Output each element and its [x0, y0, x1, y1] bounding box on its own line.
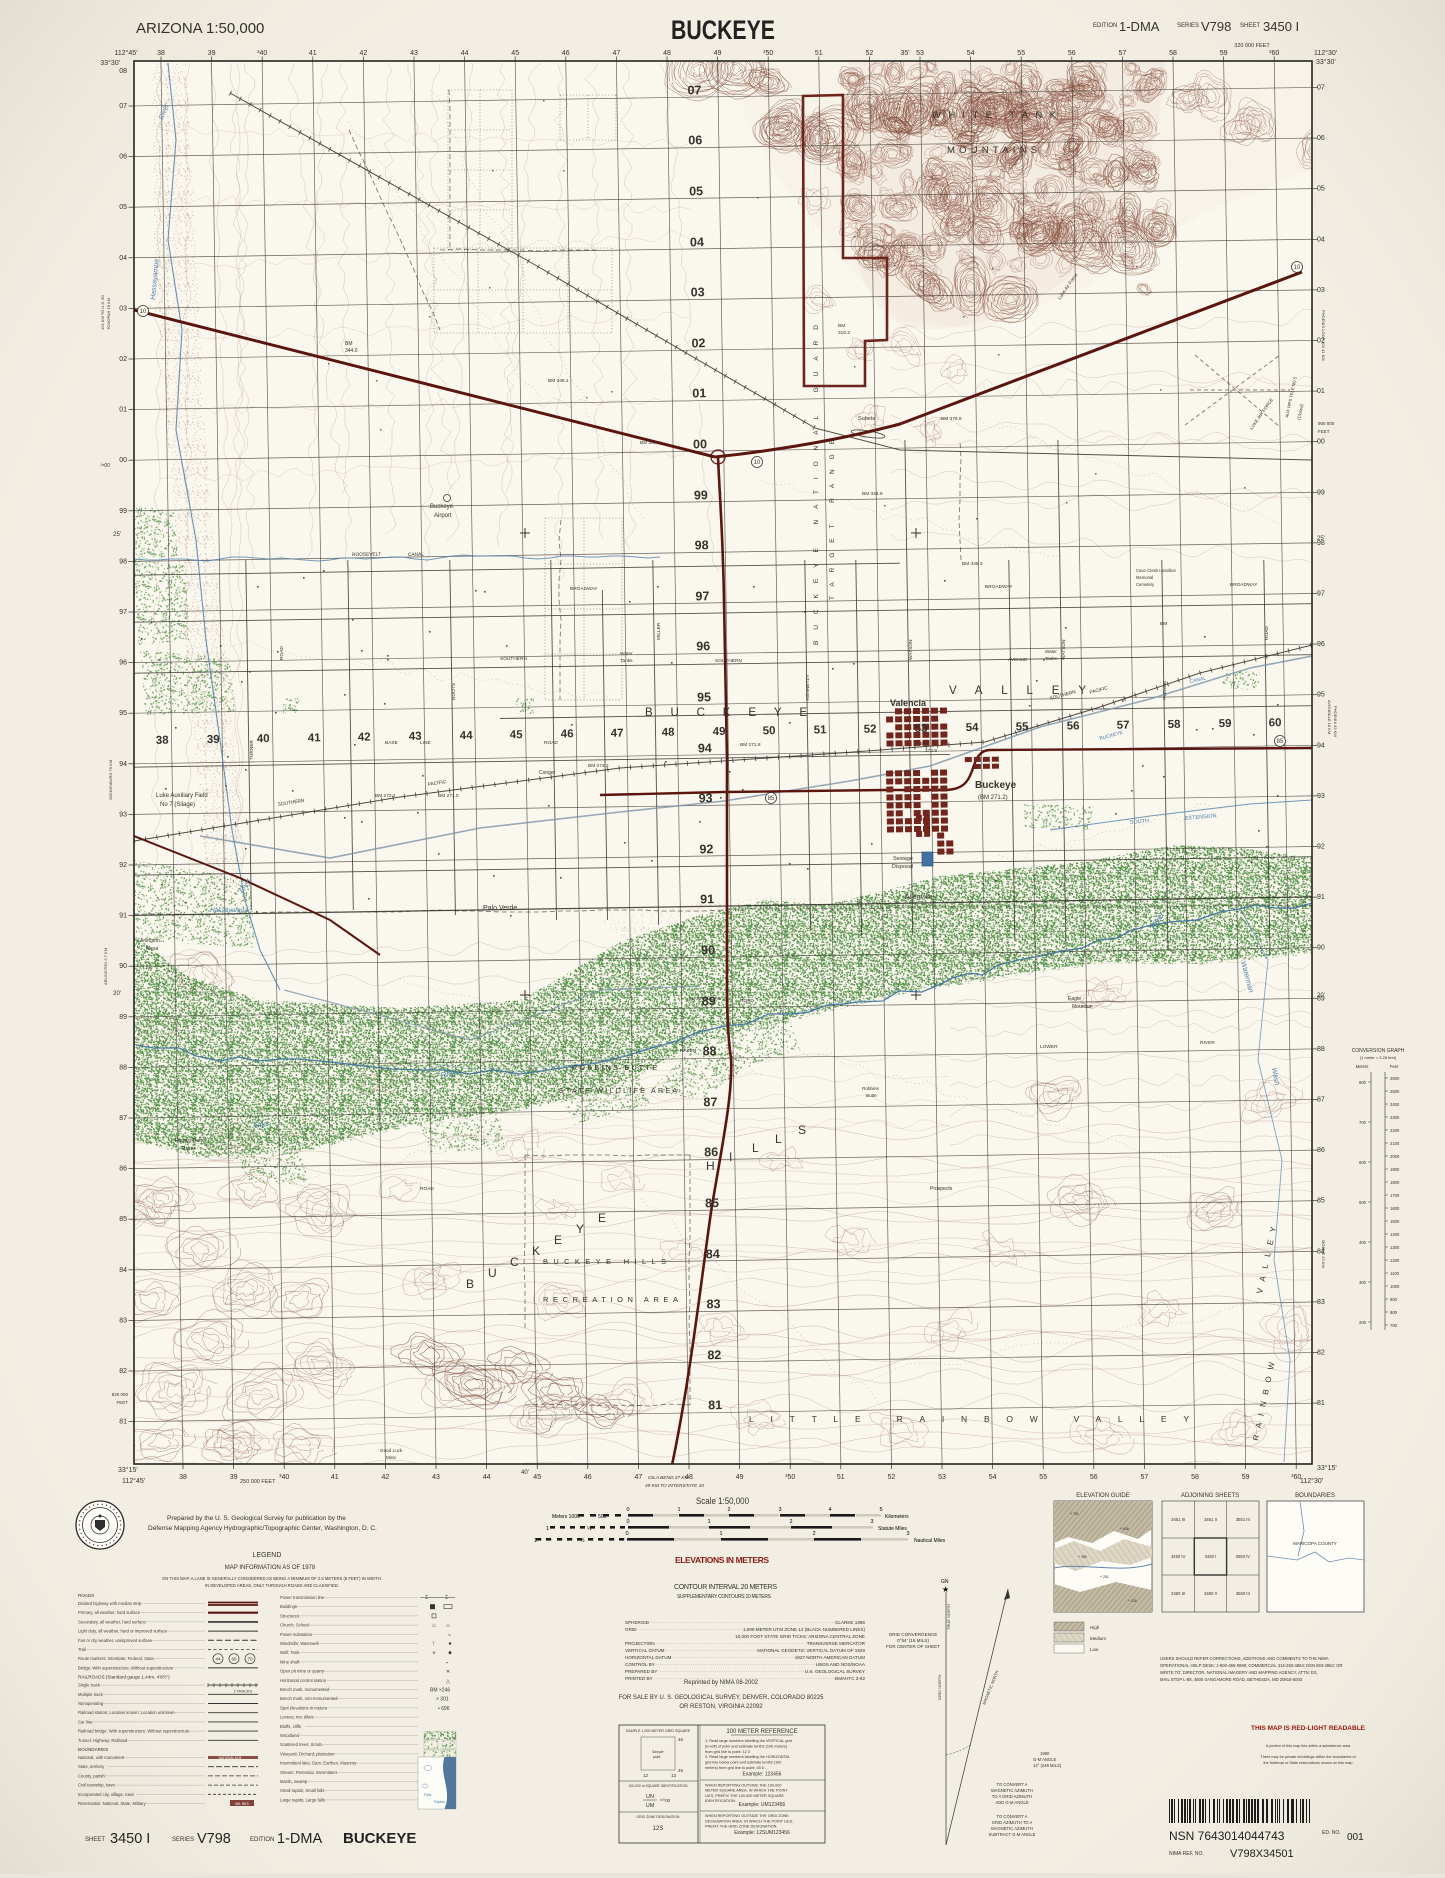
- svg-text:87: 87: [119, 1115, 127, 1122]
- svg-text:EDITION: EDITION: [1093, 23, 1117, 29]
- svg-text:BM: BM: [1160, 621, 1167, 627]
- svg-text:500: 500: [1359, 1200, 1367, 1205]
- svg-text:AVONDALE 16 KM: AVONDALE 16 KM: [1327, 700, 1332, 734]
- svg-text:Levees; rice dikes: Levees; rice dikes: [280, 1715, 314, 1720]
- svg-text:FOR SALE BY U. S. GEOLOGICAL S: FOR SALE BY U. S. GEOLOGICAL SURVEY, DEN…: [619, 1695, 825, 1701]
- svg-text:1600: 1600: [1390, 1206, 1400, 1211]
- svg-text:55: 55: [1016, 721, 1030, 733]
- svg-text:Prepared by the U. S. Geologic: Prepared by the U. S. Geological Survey …: [167, 1515, 346, 1522]
- svg-text:38: 38: [179, 1474, 187, 1481]
- svg-text:1300: 1300: [1390, 1245, 1400, 1250]
- svg-text:BM 273.2: BM 273.2: [588, 763, 609, 769]
- svg-text:98: 98: [119, 558, 127, 565]
- svg-text:Memorial: Memorial: [1136, 575, 1153, 580]
- svg-text:03: 03: [691, 285, 705, 299]
- svg-text:Tanks: Tanks: [620, 658, 633, 664]
- svg-text:BUCKEYE: BUCKEYE: [343, 1830, 416, 1847]
- svg-text:WICKENBURG 79 KM: WICKENBURG 79 KM: [108, 760, 113, 800]
- svg-text:49: 49: [713, 726, 726, 738]
- svg-text:GRID AZIMUTH TO A: GRID AZIMUTH TO A: [992, 1820, 1033, 1825]
- svg-text:54: 54: [967, 50, 975, 57]
- svg-text:14° (249 MILS): 14° (249 MILS): [1033, 1763, 1062, 1768]
- svg-text:1: 1: [707, 1519, 710, 1525]
- svg-text:Statute Miles: Statute Miles: [878, 1526, 907, 1532]
- svg-text:41: 41: [309, 50, 317, 57]
- svg-text:Bluffs, cliffs: Bluffs, cliffs: [280, 1724, 301, 1729]
- svg-text:GRID: GRID: [625, 1627, 637, 1632]
- svg-text:BM 271.0: BM 271.0: [438, 793, 459, 799]
- svg-text:RIVER: RIVER: [1200, 1040, 1215, 1046]
- svg-text:MIL RES: MIL RES: [235, 1802, 249, 1806]
- svg-text:820 000: 820 000: [112, 1392, 129, 1397]
- svg-text:400: 400: [1359, 1240, 1367, 1245]
- svg-text:Example: UM123456: Example: UM123456: [739, 1802, 786, 1808]
- svg-text:2 TRACKS: 2 TRACKS: [234, 1689, 253, 1693]
- svg-text:Nonoperating: Nonoperating: [78, 1701, 104, 1706]
- svg-text:112°30': 112°30': [1300, 1477, 1323, 1485]
- svg-text:Horizontal control station: Horizontal control station: [280, 1678, 327, 1683]
- svg-text:Cave Creek Hamilton: Cave Creek Hamilton: [1136, 568, 1176, 573]
- svg-text:91: 91: [700, 892, 714, 906]
- svg-text:SHEET: SHEET: [85, 1837, 105, 1843]
- svg-text:Tanks: Tanks: [1045, 656, 1058, 661]
- svg-text:89: 89: [119, 1014, 127, 1021]
- svg-text:BM 349.3: BM 349.3: [962, 561, 983, 567]
- svg-text:Subeta: Subeta: [858, 416, 876, 422]
- svg-text:Incorporated city, village, to: Incorporated city, village, town: [78, 1792, 135, 1797]
- svg-text:70: 70: [247, 1657, 253, 1662]
- svg-text:85: 85: [119, 1216, 127, 1223]
- svg-text:Fair or dry weather, unimprove: Fair or dry weather, unimproved surface: [78, 1638, 153, 1643]
- svg-text:1000: 1000: [1390, 1284, 1400, 1289]
- svg-text:200: 200: [1359, 1320, 1367, 1325]
- svg-text:Rapids: Rapids: [434, 1800, 445, 1804]
- svg-text:ROADS: ROADS: [78, 1593, 94, 1598]
- svg-text:ROAD: ROAD: [740, 998, 754, 1004]
- svg-text:SAMPLE 1,000 METER GRID SQUARE: SAMPLE 1,000 METER GRID SQUARE: [626, 1729, 691, 1733]
- svg-text:BROADWAY: BROADWAY: [1230, 582, 1258, 588]
- svg-text:3450 I: 3450 I: [1263, 19, 1299, 34]
- svg-text:0°54' (16 MILS): 0°54' (16 MILS): [897, 1638, 929, 1643]
- svg-text:40': 40': [521, 1470, 529, 1476]
- svg-text:90: 90: [701, 943, 715, 957]
- svg-text:BROADWAY: BROADWAY: [570, 586, 598, 592]
- svg-text:Defense Mapping Agency Hydrogr: Defense Mapping Agency Hydrographic/Topo…: [148, 1525, 377, 1532]
- svg-text:1500: 1500: [1390, 1219, 1400, 1224]
- svg-text:Small rapids; Small falls: Small rapids; Small falls: [280, 1788, 324, 1793]
- svg-text:07: 07: [119, 103, 127, 110]
- svg-text:81: 81: [708, 1398, 722, 1412]
- svg-text:0: 0: [625, 1531, 628, 1537]
- svg-text:35': 35': [900, 50, 909, 57]
- svg-text:06: 06: [1317, 135, 1325, 142]
- svg-text:WHEN REPORTING OUTSIDE THE: WHEN REPORTING OUTSIDE THE GRID ZONE: [705, 1814, 789, 1818]
- svg-text:48: 48: [662, 727, 676, 739]
- svg-text:Kilometers: Kilometers: [885, 1514, 909, 1520]
- svg-text:47: 47: [611, 728, 624, 740]
- svg-text:82: 82: [1317, 1350, 1325, 1357]
- svg-text:METER SQUARE AREA, IN WHIC: METER SQUARE AREA, IN WHICH THE POINT: [705, 1789, 788, 1793]
- svg-text:USERS SHOULD REFER CORRECTIONS: USERS SHOULD REFER CORRECTIONS, ADDITION…: [1160, 1656, 1329, 1661]
- svg-text:57: 57: [1119, 50, 1127, 57]
- svg-text:Buckeye: Buckeye: [975, 780, 1017, 791]
- svg-text:33°30': 33°30': [100, 59, 120, 67]
- svg-text:81: 81: [1317, 1400, 1325, 1407]
- svg-text:44: 44: [461, 50, 469, 57]
- svg-text:95: 95: [697, 690, 711, 704]
- svg-text:NSN 7643014044743: NSN 7643014044743: [1169, 1829, 1285, 1843]
- svg-text:Light duty, all weather, hard: Light duty, all weather, hard or improve…: [78, 1629, 168, 1634]
- svg-text:Robbins: Robbins: [862, 1086, 880, 1091]
- svg-text:OR RESTON, VIRGINIA 22092: OR RESTON, VIRGINIA 22092: [679, 1704, 763, 1710]
- svg-text:³60: ³60: [1269, 50, 1279, 57]
- svg-text:³⁸00: ³⁸00: [101, 463, 111, 469]
- svg-text:93: 93: [119, 811, 127, 818]
- svg-text:TONOPAH 19 KM: TONOPAH 19 KM: [106, 298, 111, 330]
- svg-text:3450 II: 3450 II: [1204, 1591, 1217, 1596]
- svg-text:S: S: [798, 1123, 806, 1137]
- svg-text:³50: ³50: [763, 50, 773, 57]
- svg-text:LEGEND: LEGEND: [253, 1552, 282, 1559]
- svg-text:49 KM TO INTERSTATE 10: 49 KM TO INTERSTATE 10: [645, 1483, 704, 1489]
- svg-text:1400: 1400: [1390, 1232, 1400, 1237]
- svg-text:04: 04: [1317, 236, 1325, 243]
- svg-text:2000: 2000: [1390, 1154, 1400, 1159]
- svg-text:Meters: Meters: [1356, 1064, 1369, 1069]
- svg-text:Powers Butte: Powers Butte: [175, 1138, 205, 1144]
- svg-text:Palo Verde: Palo Verde: [483, 905, 517, 912]
- svg-text:Mesa: Mesa: [146, 946, 158, 952]
- svg-text:93: 93: [1317, 793, 1325, 800]
- svg-text:CONTOUR INTERVAL 20 METERS: CONTOUR INTERVAL 20 METERS: [674, 1584, 777, 1591]
- svg-text:44: 44: [460, 730, 474, 742]
- svg-text:60: 60: [1269, 717, 1282, 729]
- svg-text:53: 53: [938, 1474, 946, 1481]
- svg-text:Conger: Conger: [539, 770, 556, 776]
- svg-text:92: 92: [699, 842, 713, 856]
- svg-text:900: 900: [1390, 1297, 1398, 1302]
- svg-text:Y: Y: [576, 1222, 584, 1236]
- svg-text:2400: 2400: [1390, 1102, 1400, 1107]
- svg-text:CONTROL BY: CONTROL BY: [625, 1662, 655, 1667]
- svg-text:88: 88: [1317, 1046, 1325, 1053]
- svg-text:00: 00: [693, 437, 707, 451]
- svg-text:88: 88: [703, 1044, 717, 1058]
- svg-text:53: 53: [916, 50, 924, 57]
- svg-text:81: 81: [119, 1419, 127, 1426]
- svg-text:49: 49: [736, 1474, 744, 1481]
- svg-text:SUPPLEMENTARY CONTOURS 10 METE: SUPPLEMENTARY CONTOURS 10 METERS: [677, 1594, 772, 1600]
- svg-text:PREPARED BY: PREPARED BY: [625, 1669, 657, 1674]
- svg-text:91: 91: [1317, 894, 1325, 901]
- svg-text:700: 700: [1359, 1120, 1367, 1125]
- svg-text:Prospects: Prospects: [930, 1186, 953, 1192]
- svg-text:Arlington: Arlington: [140, 938, 160, 944]
- svg-text:83: 83: [706, 1297, 720, 1311]
- svg-text:51: 51: [814, 724, 828, 736]
- svg-text:08: 08: [119, 68, 127, 75]
- svg-text:Cemetery: Cemetery: [1136, 582, 1155, 587]
- svg-text:03: 03: [119, 305, 127, 312]
- svg-text:Disposal: Disposal: [892, 864, 913, 870]
- svg-text:County, parish: County, parish: [78, 1773, 105, 1778]
- svg-text:Example: 12SUM123456: Example: 12SUM123456: [734, 1830, 790, 1836]
- svg-text:600: 600: [1359, 1160, 1367, 1165]
- svg-text:(to left) of point and estimat: (to left) of point and estimate tenths (…: [705, 1744, 788, 1748]
- svg-text:33°15': 33°15': [1317, 1464, 1337, 1472]
- svg-text:Open pit mine or quarry: Open pit mine or quarry: [280, 1669, 325, 1674]
- svg-text:Secondary, all weather, hard s: Secondary, all weather, hard surface: [78, 1619, 146, 1624]
- svg-text:33°30': 33°30': [1316, 58, 1336, 66]
- svg-text:ARIZONA 1:50,000: ARIZONA 1:50,000: [136, 20, 264, 37]
- svg-text:+ 251: + 251: [1100, 1575, 1109, 1579]
- svg-text:GRID NORTH: GRID NORTH: [937, 1675, 942, 1700]
- svg-text:52: 52: [866, 50, 874, 57]
- svg-text:ᛉ: ᛉ: [432, 1642, 435, 1648]
- svg-text:20': 20': [113, 991, 121, 997]
- svg-text:2. Read large numbers labelli: 2. Read large numbers labelling the HORI…: [705, 1755, 790, 1759]
- svg-text:AVENUE: AVENUE: [1008, 657, 1027, 663]
- svg-text:97: 97: [119, 609, 127, 616]
- svg-text:55: 55: [1039, 1474, 1047, 1481]
- svg-text:59: 59: [1219, 718, 1232, 730]
- svg-text:85: 85: [768, 796, 775, 802]
- svg-text:20': 20': [1317, 993, 1325, 999]
- svg-text:85: 85: [1317, 1198, 1325, 1205]
- svg-text:112°30': 112°30': [1314, 49, 1337, 57]
- svg-text:BM: BM: [920, 741, 927, 747]
- svg-text:42: 42: [382, 1474, 390, 1481]
- svg-text:45: 45: [533, 1474, 541, 1481]
- svg-text:3450 IV: 3450 IV: [1171, 1554, 1186, 1559]
- svg-text:SERIES: SERIES: [172, 1837, 194, 1843]
- svg-text:Mine: Mine: [386, 1455, 396, 1460]
- svg-text:45: 45: [510, 729, 524, 741]
- svg-text:MARICOPA COUNTY: MARICOPA COUNTY: [1293, 1541, 1337, 1546]
- svg-text:Vineyard; Orchard; plantation: Vineyard; Orchard; plantation: [280, 1751, 335, 1756]
- svg-text:2600: 2600: [1390, 1076, 1400, 1081]
- svg-text:Reservation: National, State,: Reservation: National, State, Military: [78, 1801, 147, 1806]
- svg-text:No 7 (Silage): No 7 (Silage): [160, 802, 195, 808]
- svg-text:12: 12: [643, 1773, 649, 1778]
- svg-text:+ 636: + 636: [1120, 1527, 1129, 1531]
- svg-text:Railroad station; Location kno: Railroad station; Location known; Locati…: [78, 1710, 175, 1715]
- svg-text:NIMA REF. NO.: NIMA REF. NO.: [1169, 1851, 1204, 1857]
- svg-text:△: △: [446, 1678, 450, 1684]
- svg-text:ROOSEVELT: ROOSEVELT: [352, 551, 381, 558]
- svg-text:Butte: Butte: [866, 1093, 877, 1098]
- svg-text:100 METER REFERENCE: 100 METER REFERENCE: [726, 1729, 797, 1735]
- svg-text:L: L: [752, 1141, 759, 1155]
- svg-text:Civil township, town: Civil township, town: [78, 1783, 115, 1788]
- svg-text:44: 44: [215, 1657, 221, 1662]
- svg-text:320 000 FEET: 320 000 FEET: [1234, 43, 1270, 49]
- svg-text:There may be private inholding: There may be private inholdings within t…: [1260, 1755, 1356, 1759]
- svg-text:National, with monument: National, with monument: [78, 1755, 125, 1760]
- svg-text:1: 1: [677, 1507, 680, 1513]
- svg-text:the National or State reservat: the National or State reservations shown…: [1263, 1761, 1352, 1765]
- svg-text:45: 45: [511, 50, 519, 57]
- svg-text:Single track: Single track: [78, 1683, 101, 1688]
- svg-text:112°45': 112°45': [114, 49, 137, 57]
- svg-text:97: 97: [1317, 591, 1325, 598]
- svg-text:from grid line to point: 12: from grid line to point: 12 3: [705, 1750, 750, 1754]
- svg-text:TRANSVERSE MERCATOR: TRANSVERSE MERCATOR: [807, 1641, 866, 1646]
- svg-text:RAILROADS (Standard gauge 1.44: RAILROADS (Standard gauge 1.44m, 4'8½"): [78, 1674, 170, 1680]
- svg-text:I: I: [729, 1150, 732, 1164]
- svg-text:FOR CENTER OF SHEET: FOR CENTER OF SHEET: [886, 1644, 940, 1649]
- svg-text:B: B: [466, 1277, 474, 1291]
- svg-text:V798: V798: [1201, 19, 1231, 34]
- svg-text:4: 4: [828, 1507, 831, 1513]
- svg-text:06: 06: [688, 133, 702, 147]
- svg-text:55: 55: [1017, 50, 1025, 57]
- svg-text:3450 I: 3450 I: [110, 1831, 150, 1847]
- svg-text:FEET: FEET: [116, 1400, 128, 1405]
- svg-text:★: ★: [942, 1585, 949, 1594]
- svg-text:59: 59: [1220, 50, 1228, 57]
- svg-text:Falls: Falls: [424, 1793, 432, 1797]
- svg-text:02: 02: [119, 356, 127, 363]
- svg-text:46: 46: [562, 50, 570, 57]
- svg-text:3450 III: 3450 III: [1171, 1591, 1185, 1596]
- svg-text:54: 54: [989, 1474, 997, 1481]
- svg-text:Reprinted by NIMA 08-2002: Reprinted by NIMA 08-2002: [684, 1680, 759, 1686]
- svg-text:100,000 m SQUARE IDENTIFICATIO: 100,000 m SQUARE IDENTIFICATION: [629, 1784, 688, 1788]
- svg-text:NATIONAL GEODETIC VERTICAL DAT: NATIONAL GEODETIC VERTICAL DATUM OF 1929: [757, 1648, 865, 1653]
- svg-text:3551 III: 3551 III: [1236, 1517, 1250, 1522]
- svg-text:V798: V798: [197, 1831, 231, 1847]
- svg-text:2300: 2300: [1390, 1115, 1400, 1120]
- svg-text:ELEVATIONS IN METERS: ELEVATIONS IN METERS: [675, 1555, 769, 1565]
- svg-text:BM: BM: [838, 323, 845, 329]
- svg-text:700: 700: [1390, 1323, 1398, 1328]
- svg-text:900 000: 900 000: [1318, 421, 1335, 426]
- svg-text:97: 97: [695, 589, 709, 603]
- svg-text:07: 07: [687, 83, 701, 97]
- svg-text:BM 348.1: BM 348.1: [548, 378, 569, 384]
- svg-text:58: 58: [1168, 719, 1182, 731]
- svg-text:BM ×246: BM ×246: [430, 1688, 450, 1694]
- svg-text:Church; School: Church; School: [280, 1623, 309, 1628]
- svg-text:Spot elevations in meters: Spot elevations in meters: [280, 1705, 327, 1710]
- svg-text:57: 57: [1141, 1474, 1149, 1481]
- svg-text:99: 99: [694, 488, 708, 502]
- svg-text:Windmills; Waterwell: Windmills; Waterwell: [280, 1641, 319, 1646]
- svg-text:Valencia: Valencia: [890, 698, 927, 708]
- svg-text:1-DMA: 1-DMA: [277, 1831, 322, 1847]
- svg-text:10: 10: [1294, 265, 1301, 271]
- svg-text:41: 41: [331, 1474, 339, 1481]
- svg-text:83: 83: [119, 1317, 127, 1324]
- svg-text:BOUNDARIES: BOUNDARIES: [78, 1747, 108, 1752]
- svg-text:1800: 1800: [1390, 1180, 1400, 1185]
- svg-text:46: 46: [561, 728, 574, 740]
- svg-text:PREFIX THE GRID ZONE DESIGNATI: PREFIX THE GRID ZONE DESIGNATION.: [705, 1825, 777, 1829]
- svg-text:State, territory: State, territory: [78, 1764, 105, 1769]
- svg-text:94: 94: [1317, 742, 1325, 749]
- svg-text:ROAD: ROAD: [544, 740, 558, 746]
- svg-text:54: 54: [966, 722, 980, 734]
- svg-text:BUCKEYE: BUCKEYE: [671, 15, 775, 45]
- svg-text:86: 86: [1317, 1147, 1325, 1154]
- svg-text:Buildings: Buildings: [280, 1604, 297, 1609]
- svg-text:86: 86: [119, 1166, 127, 1173]
- svg-text:ROAD: ROAD: [420, 1186, 434, 1192]
- svg-text:800: 800: [1390, 1310, 1398, 1315]
- svg-text:BOUNDARIES: BOUNDARIES: [1295, 1493, 1335, 1499]
- svg-text:96: 96: [119, 660, 127, 667]
- svg-text:A portion of this map lies wit: A portion of this map lies within a subs…: [1266, 1744, 1351, 1748]
- svg-text:BROADWAY: BROADWAY: [985, 584, 1013, 590]
- svg-text:WATSON: WATSON: [908, 639, 914, 660]
- svg-text:53: 53: [915, 723, 928, 735]
- svg-text:Allenville: Allenville: [905, 894, 933, 901]
- svg-text:USGS AND NOS/NOAA: USGS AND NOS/NOAA: [816, 1662, 866, 1667]
- svg-text:TO CONVERT A: TO CONVERT A: [997, 1782, 1028, 1787]
- svg-text:+ 389: + 389: [1078, 1555, 1087, 1559]
- svg-text:Sample: Sample: [652, 1750, 664, 1754]
- svg-text:C: C: [510, 1255, 519, 1269]
- svg-text:E: E: [598, 1211, 606, 1225]
- svg-text:MAGNETIC AZIMUTH: MAGNETIC AZIMUTH: [991, 1826, 1033, 1831]
- svg-text:Scale 1:50,000: Scale 1:50,000: [696, 1496, 749, 1506]
- svg-text:89: 89: [702, 994, 716, 1008]
- svg-text:BM 376.9: BM 376.9: [941, 416, 962, 422]
- svg-text:52: 52: [888, 1474, 896, 1481]
- svg-text:121 KM TO U.S. 60: 121 KM TO U.S. 60: [100, 294, 105, 330]
- svg-text:3550 III: 3550 III: [1236, 1591, 1250, 1596]
- svg-text:1: 1: [719, 1531, 722, 1537]
- svg-text:06: 06: [119, 154, 127, 161]
- svg-text:57: 57: [1117, 720, 1130, 732]
- svg-text:PHOENIX 43 KM: PHOENIX 43 KM: [1333, 706, 1338, 737]
- svg-text:TO A GRID AZIMUTH: TO A GRID AZIMUTH: [992, 1794, 1032, 1799]
- svg-text:UM: UM: [646, 1803, 655, 1809]
- svg-text:2: 2: [789, 1519, 792, 1525]
- svg-text:13: 13: [671, 1773, 677, 1778]
- svg-text:25': 25': [1317, 536, 1325, 542]
- svg-text:L: L: [775, 1132, 782, 1146]
- svg-text:42: 42: [358, 731, 371, 743]
- svg-text:ED. NO.: ED. NO.: [1322, 1830, 1341, 1836]
- svg-text:3: 3: [906, 1531, 909, 1537]
- svg-text:51: 51: [837, 1474, 845, 1481]
- svg-text:Trail: Trail: [78, 1647, 86, 1652]
- svg-text:MAIL STOP L-88, 4600 SANGAMORE: MAIL STOP L-88, 4600 SANGAMORE ROAD, BET…: [1160, 1677, 1303, 1682]
- svg-text:ARLINGTON 2.7 KM: ARLINGTON 2.7 KM: [103, 948, 108, 985]
- svg-text:PHOENIX LOOP 303 41 KM: PHOENIX LOOP 303 41 KM: [1321, 310, 1326, 361]
- svg-text:43: 43: [409, 731, 422, 743]
- svg-text:EDITION: EDITION: [250, 1837, 274, 1843]
- svg-text:Mine shaft: Mine shaft: [280, 1659, 300, 1664]
- svg-text:93: 93: [699, 791, 713, 805]
- svg-text:87: 87: [703, 1095, 717, 1109]
- svg-text:Well; Tank: Well; Tank: [280, 1650, 300, 1655]
- svg-text:KENNETZY: KENNETZY: [805, 674, 811, 700]
- svg-text:800: 800: [1359, 1080, 1367, 1085]
- svg-text:FEET: FEET: [1318, 429, 1330, 434]
- svg-text:90: 90: [1317, 945, 1325, 952]
- svg-text:Airport: Airport: [434, 513, 452, 519]
- svg-text:92: 92: [1317, 844, 1325, 851]
- svg-text:33°15': 33°15': [118, 1466, 138, 1474]
- svg-text:ELEVATION GUIDE: ELEVATION GUIDE: [1076, 1493, 1129, 1499]
- svg-text:94: 94: [698, 741, 712, 755]
- svg-text:98: 98: [695, 538, 709, 552]
- svg-text:39: 39: [208, 50, 216, 57]
- svg-text:⌂: ⌂: [446, 1623, 450, 1629]
